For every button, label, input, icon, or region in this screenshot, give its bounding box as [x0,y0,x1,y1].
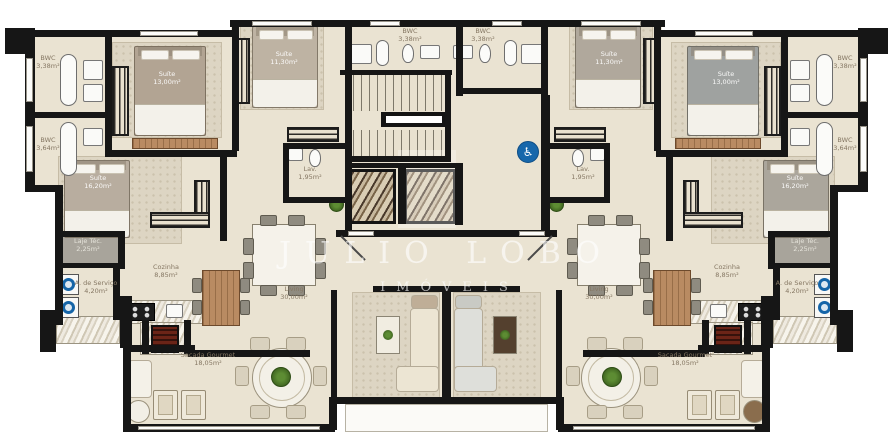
room-label-suite_11: Suíte11,30m² [580,50,638,67]
room-name: Suíte [580,50,638,58]
wall [25,30,232,37]
room-area: 8,85m² [699,271,755,279]
room-label-suite_13: Suíte13,00m² [138,70,196,87]
armchair-part [186,395,201,415]
window [492,21,522,26]
washing-machine-part [62,301,75,314]
bed-part [688,104,758,135]
chair [250,337,270,351]
sofa [454,308,483,372]
armchair-part [692,395,707,415]
wall [543,95,550,237]
toilet [479,44,491,63]
wall [666,156,673,241]
chair [240,300,250,315]
chair [260,215,277,226]
window [581,21,641,26]
room-name: BWC [26,54,70,62]
chair [192,300,202,315]
toilet [402,44,414,63]
sofa [454,366,497,392]
room-area: 13,00m² [697,78,755,86]
bath-fixture [590,148,605,161]
wood-furniture [202,270,240,326]
plant [271,367,291,387]
room-label-bwc_338: BWC3,38m² [823,54,867,71]
chair [313,366,327,386]
bed-part [694,50,722,60]
room-label-sacada_gourmet: Sacada Gourmet18,05m² [180,351,236,368]
chair [566,366,580,386]
armchair-part [158,395,173,415]
room-label-suite_11: Suíte11,30m² [255,50,313,67]
bath-fixture [350,44,372,64]
wardrobe [683,212,743,228]
wall [398,168,406,224]
wall [442,290,451,398]
wardrobe [683,180,699,216]
chair [250,405,270,419]
wall [123,345,131,432]
bed-part [610,30,636,40]
room-label-sacada_gourmet: Sacada Gourmet18,05m² [657,351,713,368]
room-area: 3,38m² [823,62,867,70]
wall [548,197,610,203]
wall [120,296,132,348]
bed-part [287,30,313,40]
bath-fixture [521,44,543,64]
wall [345,26,352,232]
armchair [687,390,712,420]
wall [661,30,868,37]
bed [575,26,641,108]
room-name: Suíte [697,70,755,78]
room-area: 16,20m² [70,182,126,190]
wall [783,112,868,118]
bed-part [582,30,608,40]
sofa [128,360,152,398]
room-area: 18,05m² [657,359,713,367]
room-area: 11,30m² [255,58,313,66]
room-name: BWC [461,27,505,35]
room-area: 3,64m² [823,144,867,152]
wall [656,150,788,157]
bed-part [172,50,200,60]
room-area: 13,00m² [138,78,196,86]
room-area: 11,30m² [580,58,638,66]
exterior [40,352,123,443]
room-area: 1,95m² [286,173,334,181]
wall [220,156,227,241]
bed-part [725,50,753,60]
watermark-brand: JULIO LOBO [0,236,893,271]
wall [455,163,463,225]
window [138,426,320,430]
room-name: BWC [823,136,867,144]
counter-marble [773,316,837,344]
room-name: BWC [388,27,432,35]
bath-fixture [710,304,727,318]
window [573,426,755,430]
window [140,31,198,36]
wardrobe [194,180,210,216]
wheelchair-icon: ♿ [517,141,539,163]
room-label-bwc_338: BWC3,38m² [461,27,505,44]
room-area: 1,95m² [559,173,607,181]
room-area: 3,38m² [26,62,70,70]
bed-part [253,79,317,107]
watermark-subtitle: IMÓVEIS [6,280,893,295]
room-label-lav: Lav.1,95m² [286,165,334,182]
bathtub [376,40,389,66]
wall [105,150,237,157]
chair [235,366,249,386]
wall [762,345,770,432]
bath-fixture [790,60,810,80]
wall [837,310,853,352]
wall [445,70,451,162]
wall [40,310,56,352]
exterior [770,352,853,443]
bed-part [770,164,796,174]
wall [5,28,27,54]
floor-plan: BWC3,38m²BWC3,38m²BWC3,64m²BWC3,64m²Suít… [0,0,893,443]
wood-furniture [132,138,218,149]
bed [252,26,318,108]
room-name: Suíte [255,50,313,58]
room-area: 3,64m² [26,144,70,152]
wall [781,30,788,157]
tv-console [376,316,400,354]
wall [105,30,112,157]
tv-console [493,316,517,354]
wall [866,28,888,54]
room-label-bwc_338: BWC3,38m² [388,27,432,44]
wall [654,26,661,151]
room-name: Sacada Gourmet [180,351,236,359]
wardrobe [287,127,339,142]
room-name: Suíte [70,174,126,182]
sofa [411,295,438,309]
wall [556,290,562,400]
wall [333,397,560,404]
bath-fixture [83,60,103,80]
armchair [715,390,740,420]
wall [744,320,751,354]
room-name: Sacada Gourmet [657,351,713,359]
chair [286,405,306,419]
wall [350,156,450,162]
room-label-suite_16: Suíte16,20m² [70,174,126,191]
sofa [455,295,482,309]
stair-treads [353,74,443,111]
bed [134,46,206,136]
room-label-suite_13: Suíte13,00m² [697,70,755,87]
room-label-lav: Lav.1,95m² [559,165,607,182]
wall [232,26,239,151]
wall [25,112,110,118]
chair [643,300,653,315]
rear-ledge [345,404,548,432]
bathtub [504,40,517,66]
bath-fixture [83,84,103,102]
chair [623,337,643,351]
wall [283,143,345,149]
wall [462,88,548,94]
wall [548,143,610,149]
chair [616,215,633,226]
room-name: Lav. [286,165,334,173]
window [695,31,753,36]
room-label-suite_16: Suíte16,20m² [767,174,823,191]
room-name: Lav. [559,165,607,173]
armchair [181,390,206,420]
chair [623,405,643,419]
wall [184,320,191,354]
wall [702,320,709,354]
bed-part [141,50,169,60]
room-label-bwc_364: BWC3,64m² [823,136,867,153]
bath-fixture [166,304,183,318]
tv-console-part [500,330,510,340]
chair [286,337,306,351]
room-area: 8,85m² [138,271,194,279]
wall [283,197,345,203]
bath-fixture [288,148,303,161]
room-area: 16,20m² [767,182,823,190]
stair-landing-part [386,116,442,123]
tv-console-part [383,330,393,340]
chair [587,405,607,419]
wardrobe [764,66,781,136]
wood-furniture [675,138,761,149]
wood-furniture [653,270,691,326]
bed-part [135,104,205,135]
window [252,21,312,26]
wall [761,296,773,348]
wall [340,70,452,75]
chair [288,215,305,226]
room-name: Suíte [138,70,196,78]
bed-part [99,164,125,174]
room-area: 3,38m² [461,35,505,43]
room-name: BWC [26,136,70,144]
wall [142,320,149,354]
room-name: BWC [823,54,867,62]
wardrobe [554,127,606,142]
bath-fixture [790,84,810,102]
plant [602,367,622,387]
window [370,21,400,26]
sofa [410,308,439,372]
counter-marble [56,316,120,344]
room-area: 18,05m² [180,359,236,367]
armchair-part [720,395,735,415]
room-label-bwc_338: BWC3,38m² [26,54,70,71]
armchair [153,390,178,420]
bed [687,46,759,136]
bath-fixture [83,128,103,146]
elevator-cab [349,169,396,224]
chair [587,337,607,351]
sofa [396,366,439,392]
stair-landing [381,112,447,127]
chair [644,366,658,386]
wall [331,290,337,400]
chair [691,300,701,315]
bath-fixture [790,128,810,146]
bed-part [259,30,285,40]
bath-fixture [420,45,440,59]
wardrobe [150,212,210,228]
room-name: Suíte [767,174,823,182]
chair [588,215,605,226]
wardrobe [112,66,129,136]
room-area: 3,38m² [388,35,432,43]
exterior [0,0,893,20]
room-label-bwc_364: BWC3,64m² [26,136,70,153]
bed-part [576,79,640,107]
